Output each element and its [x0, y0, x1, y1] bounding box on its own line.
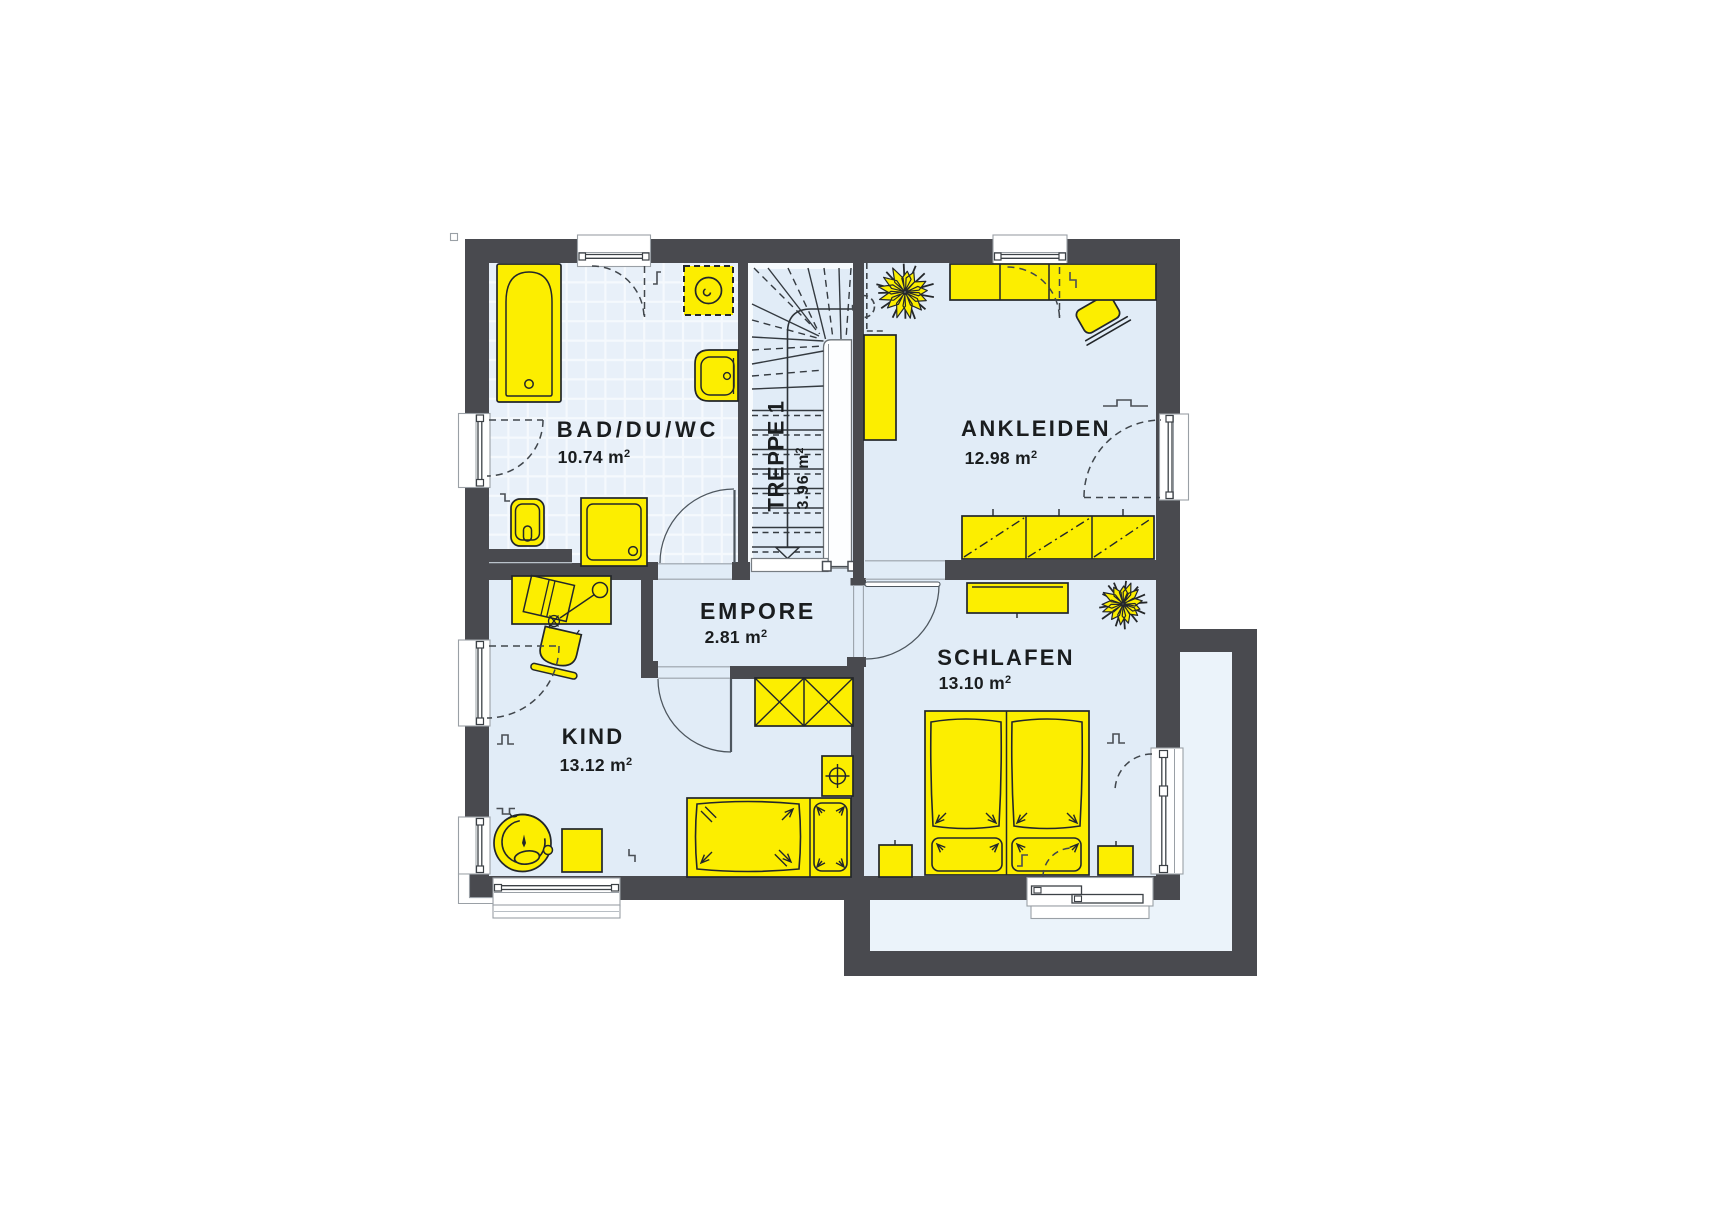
svg-text:13.10 m2: 13.10 m2: [939, 673, 1012, 693]
svg-text:10.74 m2: 10.74 m2: [558, 447, 631, 467]
svg-text:13.12 m2: 13.12 m2: [560, 755, 633, 775]
svg-text:TREPPE 1: TREPPE 1: [764, 400, 789, 511]
svg-text:12.98 m2: 12.98 m2: [965, 448, 1038, 468]
svg-text:EMPORE: EMPORE: [700, 598, 816, 624]
svg-text:3.96 m2: 3.96 m2: [794, 447, 812, 510]
svg-text:KIND: KIND: [562, 724, 625, 749]
svg-text:SCHLAFEN: SCHLAFEN: [937, 645, 1074, 670]
svg-text:ANKLEIDEN: ANKLEIDEN: [961, 416, 1111, 441]
svg-text:BAD/DU/WC: BAD/DU/WC: [557, 417, 720, 442]
svg-text:2.81 m2: 2.81 m2: [705, 627, 768, 647]
